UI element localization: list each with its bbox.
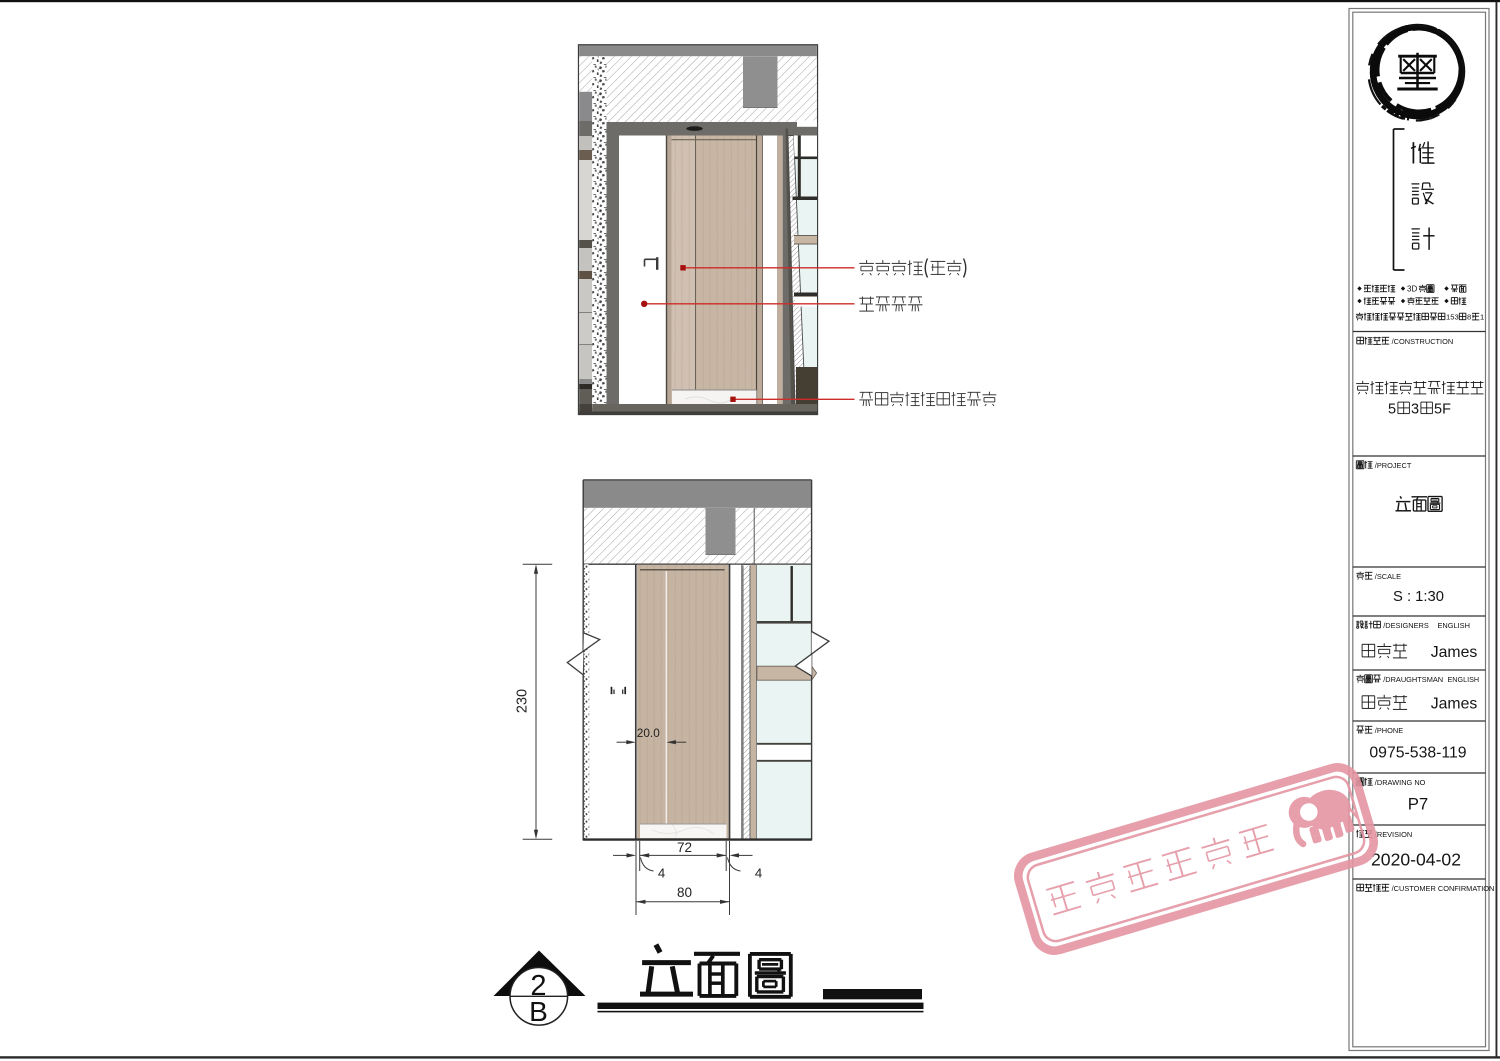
svg-text:3D: 3D xyxy=(1407,285,1417,294)
svg-text:5: 5 xyxy=(1388,402,1396,418)
svg-text:4: 4 xyxy=(658,866,665,881)
svg-text:/PHONE: /PHONE xyxy=(1375,726,1403,735)
svg-text:20.0: 20.0 xyxy=(637,726,660,740)
svg-text:James: James xyxy=(1431,696,1478,713)
svg-text:/CONSTRUCTION: /CONSTRUCTION xyxy=(1392,337,1454,346)
svg-text:/PROJECT: /PROJECT xyxy=(1375,461,1412,470)
svg-text:/REVISION: /REVISION xyxy=(1375,830,1412,839)
svg-text:5F: 5F xyxy=(1434,402,1451,418)
svg-text:P7: P7 xyxy=(1408,795,1429,814)
svg-text:/DESIGNERS: /DESIGNERS xyxy=(1383,621,1429,630)
svg-text:80: 80 xyxy=(677,885,692,900)
svg-text:ENGLISH: ENGLISH xyxy=(1438,621,1470,630)
svg-text:/DRAUGHTSMAN: /DRAUGHTSMAN xyxy=(1383,675,1443,684)
svg-text:4: 4 xyxy=(755,866,762,881)
svg-text:3: 3 xyxy=(1411,402,1419,418)
svg-text:ENGLISH: ENGLISH xyxy=(1448,675,1480,684)
svg-text:230: 230 xyxy=(515,689,531,713)
svg-text:153: 153 xyxy=(1446,313,1459,322)
svg-text:S : 1:30: S : 1:30 xyxy=(1393,589,1444,605)
svg-text:James: James xyxy=(1431,644,1478,661)
svg-text:72: 72 xyxy=(677,840,692,855)
svg-text:/SCALE: /SCALE xyxy=(1375,572,1401,581)
svg-text:8: 8 xyxy=(1467,313,1471,322)
svg-text:/DRAWING NO: /DRAWING NO xyxy=(1375,778,1426,787)
svg-text:B: B xyxy=(529,996,548,1027)
svg-text:1: 1 xyxy=(1480,313,1484,322)
svg-text:/CUSTOMER CONFIRMATION: /CUSTOMER CONFIRMATION xyxy=(1392,884,1495,893)
svg-text:2020-04-02: 2020-04-02 xyxy=(1371,850,1461,870)
svg-text:0975-538-119: 0975-538-119 xyxy=(1369,745,1466,762)
